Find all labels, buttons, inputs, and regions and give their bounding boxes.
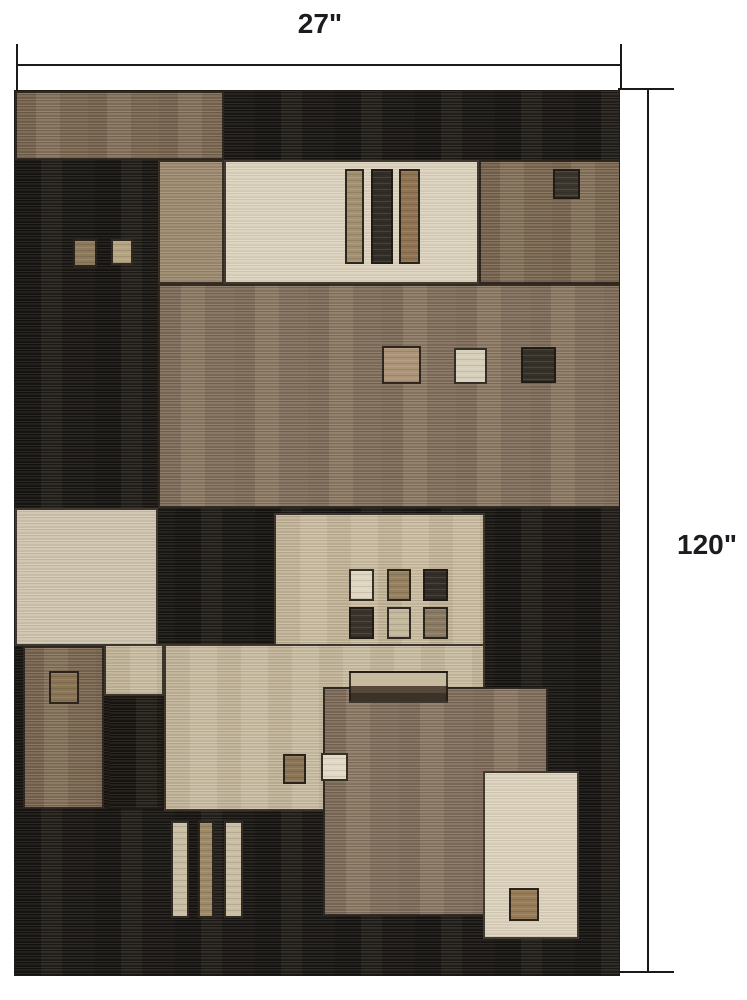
rug-block-tan-strip [158, 160, 224, 284]
rug-grid-square-brown [387, 569, 411, 601]
height-dimension-line [647, 89, 649, 973]
rug-grid-square-beige [387, 607, 411, 639]
rug-block-left-beige [15, 508, 158, 646]
rug-vertical-bar-dark [371, 169, 393, 264]
rug-square-cream-small-overlap [321, 753, 348, 781]
rug-bottom-bar-beige-2 [224, 821, 243, 918]
rug-block-middle-brown-band [158, 284, 620, 508]
height-dimension-tick-bottom [618, 971, 674, 973]
rug-block-top-right-brown [479, 160, 620, 284]
rug-bottom-bar-brown [198, 821, 214, 918]
rug-square-tan-left-column [111, 239, 133, 265]
width-dimension-tick-right [620, 44, 622, 90]
rug-square-dark-mid-band [521, 347, 556, 383]
rug-vertical-bar-brown [399, 169, 420, 264]
dimension-diagram: 27" 120" [0, 0, 747, 1000]
rug-block-beige-patch [104, 644, 164, 696]
rug-grid-square-dark2 [349, 607, 374, 639]
rug-square-dark-top-right [553, 169, 580, 199]
rug-square-tan-mid-band [382, 346, 421, 384]
rug-grid-square-cream [349, 569, 374, 601]
height-dimension-label: 120" [677, 529, 737, 561]
rug-image [14, 90, 620, 976]
width-dimension-line [17, 64, 622, 66]
rug-square-brown-small-overlap [283, 754, 306, 784]
width-dimension-label: 27" [0, 8, 640, 40]
rug-grid-square-dark [423, 569, 448, 601]
rug-horizontal-bar-outlined [349, 671, 448, 703]
rug-square-brown-bottom-left [49, 671, 79, 704]
rug-grid-square-greybrown [423, 607, 448, 639]
rug-block-top-left-brown-band [15, 91, 224, 160]
rug-square-brown-in-cream [509, 888, 539, 921]
rug-block-dark-inset [108, 696, 164, 809]
height-dimension-tick-top [618, 88, 674, 90]
rug-bottom-bar-beige-1 [171, 821, 189, 918]
rug-square-brown-left-column [73, 239, 97, 267]
rug-square-cream-mid-band [454, 348, 487, 384]
width-dimension-tick-left [16, 44, 18, 90]
rug-vertical-bar-tan [345, 169, 364, 264]
